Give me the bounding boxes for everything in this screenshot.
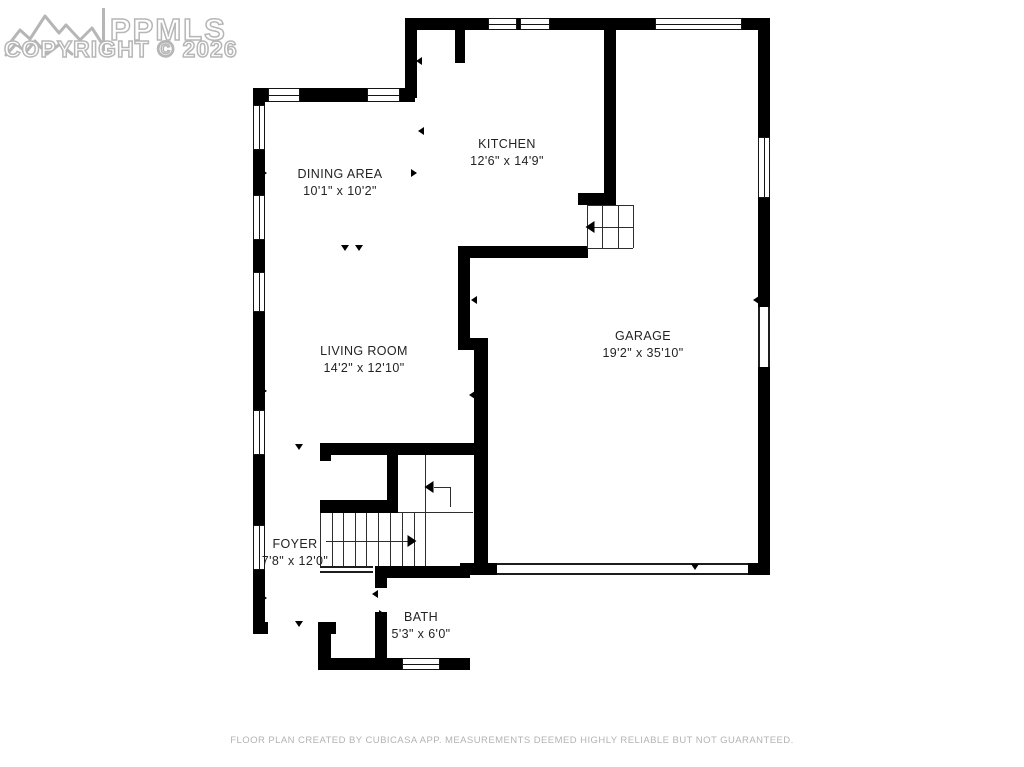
room-dims-kitchen: 12'6" x 14'9"	[470, 153, 544, 170]
door-marker-icon	[355, 245, 363, 251]
wall	[604, 30, 616, 195]
window	[253, 105, 265, 150]
stair-line	[366, 513, 367, 566]
room-label-foyer: FOYER7'8" x 12'0"	[262, 536, 328, 570]
room-label-bath: BATH5'3" x 6'0"	[391, 609, 450, 643]
room-name-living-room: LIVING ROOM	[320, 343, 408, 360]
stair-line	[378, 513, 379, 566]
room-dims-dining-area: 10'1" x 10'2"	[298, 183, 383, 200]
wall	[375, 566, 470, 578]
window	[367, 88, 400, 102]
room-dims-garage: 19'2" x 35'10"	[602, 345, 683, 362]
stair-line	[390, 513, 391, 566]
window	[253, 410, 265, 455]
door-marker-icon	[471, 296, 477, 304]
floor-plan-page: PPMLS COPYRIGHT © 2026 KITCHEN12'6" x 14…	[0, 0, 1024, 767]
door-marker-icon	[411, 169, 417, 177]
room-name-dining-area: DINING AREA	[298, 166, 383, 183]
stair-line	[355, 513, 356, 566]
door-marker-icon	[372, 590, 378, 598]
wall	[578, 193, 616, 205]
room-dims-living-room: 14'2" x 12'10"	[320, 360, 408, 377]
room-label-living-room: LIVING ROOM14'2" x 12'10"	[320, 343, 408, 377]
room-label-garage: GARAGE19'2" x 35'10"	[602, 328, 683, 362]
stair-line	[434, 487, 450, 488]
room-label-kitchen: KITCHEN12'6" x 14'9"	[470, 136, 544, 170]
stair-line	[332, 513, 333, 566]
stair-line	[402, 513, 403, 566]
door-marker-icon	[295, 444, 303, 450]
stair-line	[425, 455, 426, 566]
stair-line	[343, 513, 344, 566]
door-marker-icon	[418, 127, 424, 135]
door-marker-icon	[469, 391, 475, 399]
footer-disclaimer: FLOOR PLAN CREATED BY CUBICASA APP. MEAS…	[0, 735, 1024, 746]
wall	[375, 612, 387, 662]
door-marker-icon	[416, 57, 422, 65]
wall	[320, 443, 331, 461]
wall	[320, 443, 474, 455]
room-name-bath: BATH	[391, 609, 450, 626]
window	[488, 18, 517, 30]
door-marker-icon	[586, 221, 595, 233]
room-dims-bath: 5'3" x 6'0"	[391, 626, 450, 643]
wall	[318, 622, 336, 634]
wall	[748, 563, 770, 575]
window	[402, 658, 440, 670]
stair-line	[587, 205, 633, 206]
garage-side-door-opening	[758, 307, 770, 367]
stair-line	[450, 487, 451, 507]
wall	[375, 566, 387, 588]
room-name-garage: GARAGE	[602, 328, 683, 345]
wall	[758, 18, 770, 575]
stair-line	[587, 248, 633, 249]
window	[655, 18, 742, 30]
wall	[474, 338, 488, 565]
room-label-dining-area: DINING AREA10'1" x 10'2"	[298, 166, 383, 200]
wall	[458, 246, 588, 258]
door-marker-icon	[753, 296, 759, 304]
window	[253, 195, 265, 240]
room-name-kitchen: KITCHEN	[470, 136, 544, 153]
window	[520, 18, 550, 30]
room-name-foyer: FOYER	[262, 536, 328, 553]
copyright-text: COPYRIGHT © 2026	[4, 36, 238, 63]
wall	[458, 246, 470, 350]
room-dims-foyer: 7'8" x 12'0"	[262, 553, 328, 570]
door-marker-icon	[295, 621, 303, 627]
window	[253, 272, 265, 312]
door-marker-icon	[261, 169, 267, 177]
garage-door-opening	[497, 563, 748, 575]
wall	[455, 30, 465, 63]
door-marker-icon	[341, 245, 349, 251]
window	[268, 88, 300, 102]
stair-line	[398, 512, 473, 513]
stair-line	[326, 541, 410, 542]
stair-line	[594, 227, 633, 228]
window	[758, 137, 770, 198]
wall	[387, 455, 398, 513]
door-marker-icon	[515, 247, 523, 253]
door-marker-icon	[379, 610, 385, 618]
wall	[253, 622, 268, 634]
door-marker-icon	[261, 387, 267, 395]
wall	[318, 658, 470, 670]
stair-line	[633, 205, 634, 248]
door-marker-icon	[408, 535, 417, 547]
door-marker-icon	[261, 594, 267, 602]
door-marker-icon	[425, 481, 434, 493]
door-marker-icon	[691, 564, 699, 570]
